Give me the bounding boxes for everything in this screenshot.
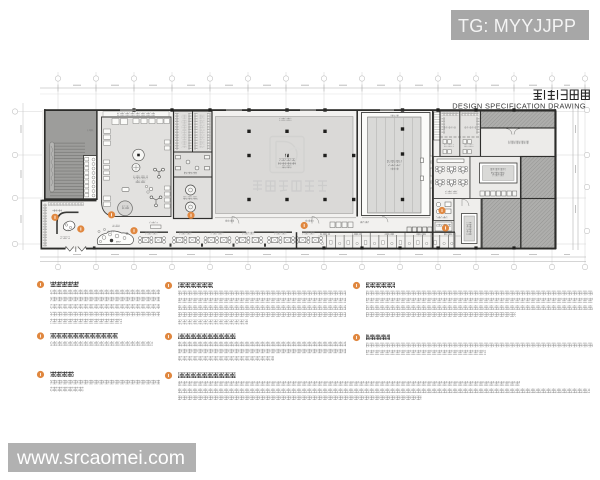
svg-text:TG: MYYJJPP: TG: MYYJJPP: [458, 16, 576, 36]
svg-text:www.srcaomei.com: www.srcaomei.com: [16, 447, 185, 469]
svg-text:DESIGN SPECIFICATION DRAWING: DESIGN SPECIFICATION DRAWING: [452, 102, 586, 111]
